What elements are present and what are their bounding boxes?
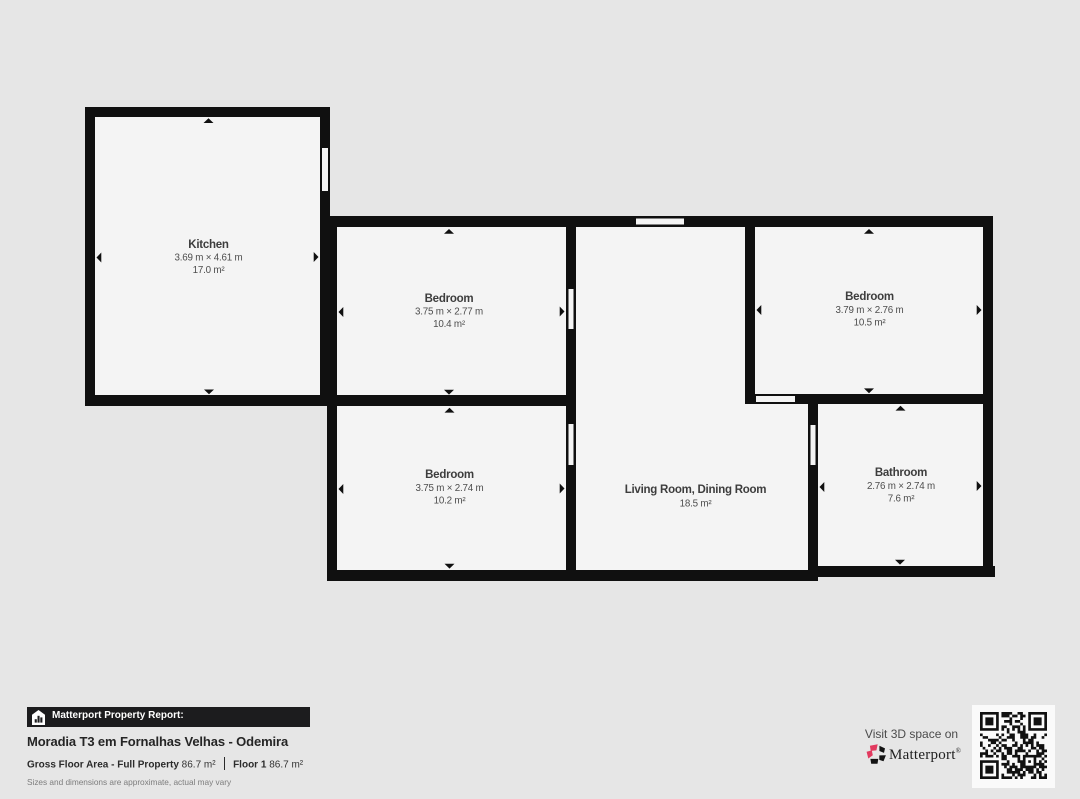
- svg-text:10.4 m²: 10.4 m²: [433, 319, 466, 330]
- svg-text:Kitchen: Kitchen: [188, 239, 229, 251]
- svg-text:Bathroom: Bathroom: [875, 467, 927, 479]
- svg-text:Bedroom: Bedroom: [845, 291, 894, 303]
- svg-text:3.75 m × 2.77 m: 3.75 m × 2.77 m: [415, 307, 483, 318]
- svg-text:17.0 m²: 17.0 m²: [193, 265, 226, 276]
- svg-text:3.69 m × 4.61 m: 3.69 m × 4.61 m: [174, 253, 242, 264]
- svg-text:10.2 m²: 10.2 m²: [434, 495, 467, 506]
- svg-text:7.6 m²: 7.6 m²: [888, 493, 916, 504]
- svg-text:18.5 m²: 18.5 m²: [680, 498, 713, 509]
- svg-text:Bedroom: Bedroom: [425, 293, 474, 305]
- svg-text:Living Room, Dining Room: Living Room, Dining Room: [625, 484, 767, 496]
- svg-text:3.75 m × 2.74 m: 3.75 m × 2.74 m: [415, 483, 483, 494]
- svg-text:3.79 m × 2.76 m: 3.79 m × 2.76 m: [835, 305, 903, 316]
- svg-text:2.76 m × 2.74 m: 2.76 m × 2.74 m: [867, 481, 935, 492]
- svg-text:Bedroom: Bedroom: [425, 469, 474, 481]
- svg-text:10.5 m²: 10.5 m²: [854, 317, 887, 328]
